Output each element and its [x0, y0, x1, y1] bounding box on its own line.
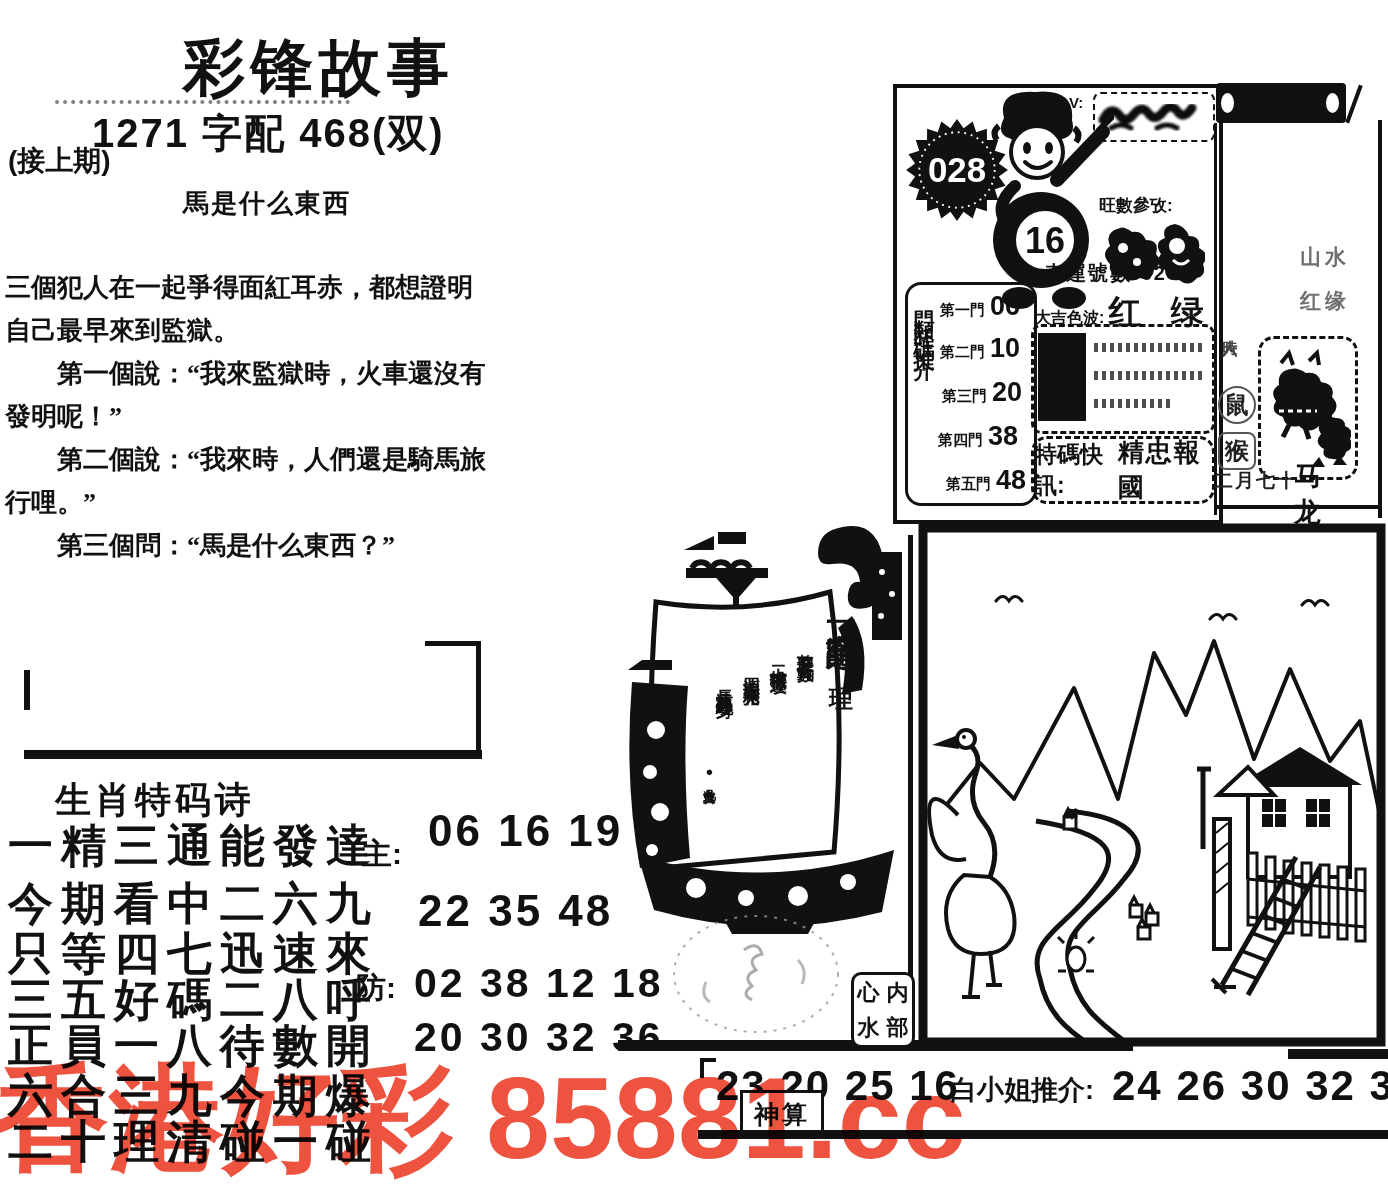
door-row: 第一門 06	[940, 291, 1020, 322]
sail-line: 四源十五兩相見	[738, 664, 765, 866]
side-faint-text: 山水	[1300, 243, 1350, 271]
main-numbers-row2: 22 35 48	[418, 886, 613, 936]
fuzzy-text-line	[1094, 343, 1206, 352]
sail-line: 二十投機可進攻	[765, 652, 792, 866]
main-numbers-row1: 06 16 19	[428, 806, 623, 856]
fuzzy-text-line	[1094, 399, 1174, 408]
door-value: 20	[992, 377, 1022, 408]
story-title: 馬是什么東西	[183, 186, 351, 221]
poem-line: 一精三通能發達	[8, 816, 379, 876]
special-tip-box: 特碼快訊: 精忠報國	[1031, 436, 1215, 504]
animal-silhouettes	[1261, 339, 1351, 471]
inner-tip-box: 心 内 水 部	[851, 972, 915, 1048]
box-bottom-line	[24, 750, 482, 759]
door-label: 第五門	[946, 475, 991, 494]
doors-box: 門類旺碼推介 第一門 06 第二門 10 第三門 20 第四門 38 第五門 4…	[905, 282, 1037, 506]
zodiac-char: 猴	[1218, 432, 1256, 470]
sail-verse: 一字記之曰： 理 整理三七合九數 二十投機可進攻 四源十五兩相見 長連八碼終現身	[663, 606, 863, 866]
lucky-number-line: 幸運號數:62	[1044, 260, 1167, 287]
note-box	[1031, 324, 1215, 434]
inner-tip-char: 心	[858, 978, 880, 1008]
door-row: 第五門 48	[946, 465, 1026, 496]
side-faint-text: 红缘	[1300, 287, 1350, 315]
faint-seal	[666, 912, 846, 1044]
sail-line: 整理三七合九數	[792, 640, 819, 866]
bottom-bar	[1288, 1049, 1388, 1059]
zodiac-char: 鼠	[1218, 386, 1256, 424]
banner-dot	[1326, 93, 1339, 113]
code-line: 1271 字配 468(双)	[92, 106, 445, 161]
box-tick-line	[24, 670, 30, 710]
main-label: 主:	[362, 834, 402, 875]
box-corner-line	[476, 641, 481, 757]
banner-dot	[1221, 93, 1234, 113]
inner-tip-char: 部	[887, 1013, 909, 1043]
door-row: 第二門 10	[940, 333, 1020, 364]
sail-signature: ●曾道文凡	[700, 764, 718, 779]
dotted-divider	[55, 100, 350, 104]
door-value: 38	[988, 421, 1018, 452]
vertical-divider	[908, 535, 913, 1020]
story-paragraph: 第一個說：“我來監獄時，火車還沒有發明呢！”	[5, 352, 489, 438]
fuzzy-text-line	[1094, 371, 1206, 380]
scan-artifact-line	[1345, 85, 1362, 124]
side-date-text: 二月七十	[1214, 468, 1298, 494]
story-paragraph: 三個犯人在一起爭得面紅耳赤，都想證明自己最早來到監獄。	[5, 266, 489, 352]
lottery-tip-sheet: 彩锋故事 1271 字配 468(双) (接上期) 馬是什么東西 三個犯人在一起…	[0, 0, 1388, 1186]
side-vertical-label: 六人時	[1220, 328, 1239, 392]
special-tip-label: 特碼快訊:	[1034, 439, 1118, 501]
sail-headline: 一字記之曰：	[825, 606, 858, 654]
door-label: 第三門	[942, 387, 987, 406]
guard-numbers-row1: 02 38 12 18	[414, 960, 664, 1007]
sail-headline-column: 一字記之曰： 理	[819, 606, 863, 866]
door-value: 10	[990, 333, 1020, 364]
door-label: 第二門	[940, 343, 985, 362]
scribble-banner	[1093, 92, 1215, 142]
door-value: 06	[990, 291, 1020, 322]
continued-note: (接上期)	[8, 142, 111, 180]
site-watermark: 香港好彩 85881.cc	[0, 1042, 966, 1186]
door-value: 48	[996, 465, 1026, 496]
inner-tip-char: 内	[887, 978, 909, 1008]
story-text: 三個犯人在一起爭得面紅耳赤，都想證明自己最早來到監獄。 第一個說：“我來監獄時，…	[5, 266, 489, 567]
svg-text:028: 028	[928, 150, 986, 189]
guard-label: 防:	[356, 968, 396, 1009]
door-label: 第四門	[938, 431, 983, 450]
door-label: 第一門	[940, 301, 985, 320]
page-title: 彩锋故事	[183, 26, 455, 110]
story-paragraph: 第三個問：“馬是什么東西？”	[5, 524, 489, 567]
story-paragraph: 第二個說：“我來時，人們還是騎馬旅行哩。”	[5, 438, 489, 524]
black-square	[1038, 333, 1086, 421]
door-row: 第四門 38	[938, 421, 1018, 452]
v-mark: V:	[1069, 94, 1083, 111]
side-animals-text: 马 龙	[1294, 458, 1388, 530]
box-corner-line	[425, 641, 481, 646]
svg-text:16: 16	[1025, 220, 1065, 261]
landscape-illustration	[918, 523, 1386, 1047]
recommend-numbers: 24 26 30 32 36	[1112, 1062, 1388, 1110]
special-tip-value: 精忠報國	[1118, 435, 1212, 505]
inner-tip-char: 水	[858, 1013, 880, 1043]
door-row: 第三門 20	[942, 377, 1022, 408]
side-column-left-border	[1214, 123, 1217, 515]
recommend-label: 白小姐推介:	[950, 1072, 1094, 1108]
doors-vertical-label: 門類旺碼推介	[910, 293, 938, 498]
issue-info-box: 028 16 V:	[893, 84, 1223, 524]
